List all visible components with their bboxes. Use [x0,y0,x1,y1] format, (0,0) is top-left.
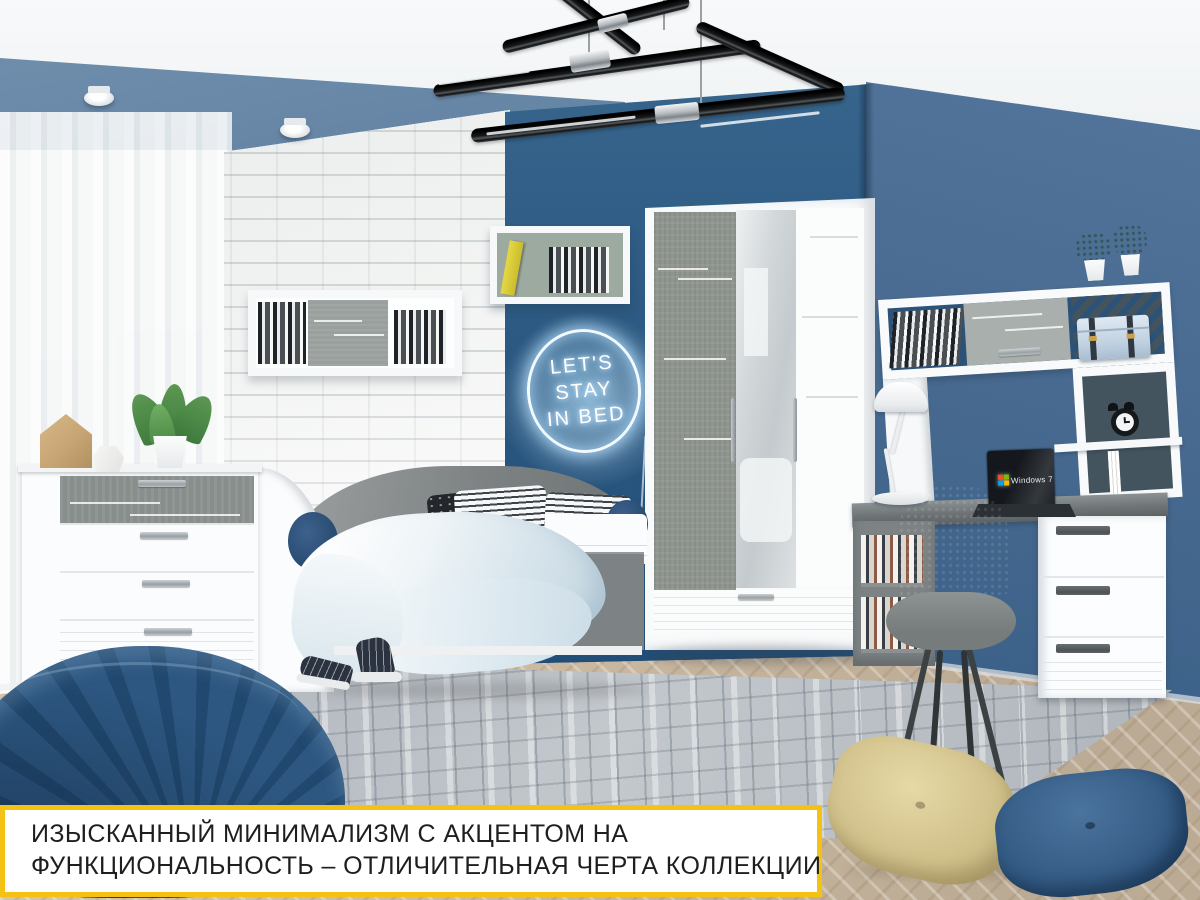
neon-text-line: IN BED [546,401,627,434]
drawer-handle [140,532,188,539]
decor-line [130,514,240,516]
desk-pedestal [1038,516,1166,698]
clock-bell [1124,402,1134,411]
decor-line [70,502,160,504]
drawer-handle [1056,526,1110,535]
spotlight-mount [284,118,306,125]
drawer-handle [138,480,186,487]
hutch-gray-door [963,297,1071,365]
books [889,308,963,369]
decor-line [314,320,362,322]
drawer-handle [1056,644,1110,653]
decor-line [678,278,732,280]
drawer-divider [1040,576,1164,578]
wall-shelf [248,290,462,376]
drawer-handle [142,580,190,587]
decor-lines [1042,654,1162,694]
wardrobe-handle [731,398,735,462]
caption-line-1: ИЗЫСКАННЫЙ МИНИМАЛИЗМ С АКЦЕНТОМ НА [31,818,801,851]
storage-trunk [1077,315,1151,361]
decor-line [334,334,384,336]
caption-line-2: ФУНКЦИОНАЛЬНОСТЬ – ОТЛИЧИТЕЛЬНАЯ ЧЕРТА К… [31,850,801,883]
drawer-handle [738,594,774,600]
books [549,247,609,293]
wardrobe-door-fabric [654,212,736,590]
alarm-clock-icon [1110,407,1140,437]
floor-shadow [320,682,650,698]
drawer-divider [1040,636,1164,638]
laptop: Windows 7 [987,449,1055,509]
spotlight-mount [88,86,110,93]
pillow-tuft [1085,822,1096,830]
drawer-handle [1056,586,1110,595]
wall-cube-shelf [490,226,630,304]
decor-line [658,268,708,270]
windows-logo-icon [998,474,1009,485]
desk-chair-seat [886,592,1016,650]
wardrobe-door-mirror [736,210,796,588]
trunk-buckle [1089,336,1097,341]
clock-hand [1125,421,1130,423]
caption-banner: ИЗЫСКАННЫЙ МИНИМАЛИЗМ С АКЦЕНТОМ НА ФУНК… [0,805,822,897]
decor-line [806,396,858,398]
mirror-reflection [744,268,768,356]
clock-bell [1108,403,1118,412]
decor-line [684,438,732,440]
decor-line [802,316,858,318]
yellow-book [500,240,523,296]
hutch-column [1073,362,1183,503]
pouf-rim [0,662,303,782]
showroom-photo: LET'S STAY IN BED [0,0,1200,900]
trunk-lid-seam [1077,326,1149,332]
decor-line [1005,326,1063,332]
books [258,302,306,364]
wardrobe-handle [793,398,797,462]
mirror-reflection [740,458,792,542]
decor-line [810,236,858,238]
desk-chair-back [898,485,1008,603]
sneaker-sole [352,672,402,682]
wardrobe-drawer [654,590,864,632]
clock-face [1115,413,1134,432]
decor-line [972,313,1042,319]
pillow-tuft [915,801,926,810]
books [394,310,446,364]
shelf-gray-door [308,300,388,366]
door-handle [998,347,1040,357]
decor-line [664,358,726,360]
drawer-handle [144,628,192,635]
trunk-buckle [1127,333,1135,338]
floor-shadow [652,646,872,664]
